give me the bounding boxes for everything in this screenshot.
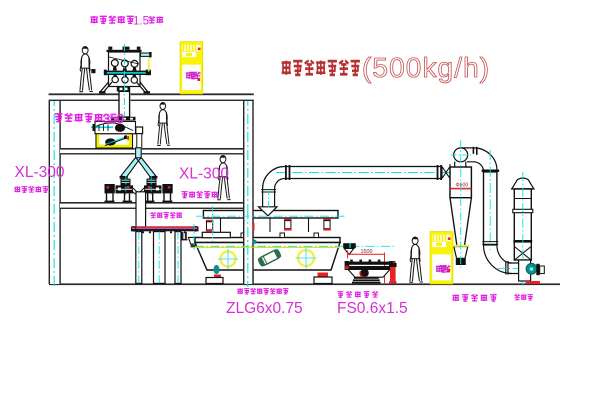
- svg-text:XL-300: XL-300: [15, 164, 65, 181]
- svg-text:Φ600: Φ600: [456, 183, 469, 189]
- svg-text:350: 350: [103, 112, 124, 126]
- svg-text:1500: 1500: [361, 249, 373, 255]
- svg-text:(500kg/h): (500kg/h): [362, 52, 490, 83]
- svg-text:XL-300: XL-300: [179, 166, 229, 183]
- svg-text:1.5: 1.5: [133, 16, 149, 28]
- svg-text:ZLG6x0.75: ZLG6x0.75: [226, 300, 303, 317]
- svg-text:FS0.6x1.5: FS0.6x1.5: [337, 300, 408, 317]
